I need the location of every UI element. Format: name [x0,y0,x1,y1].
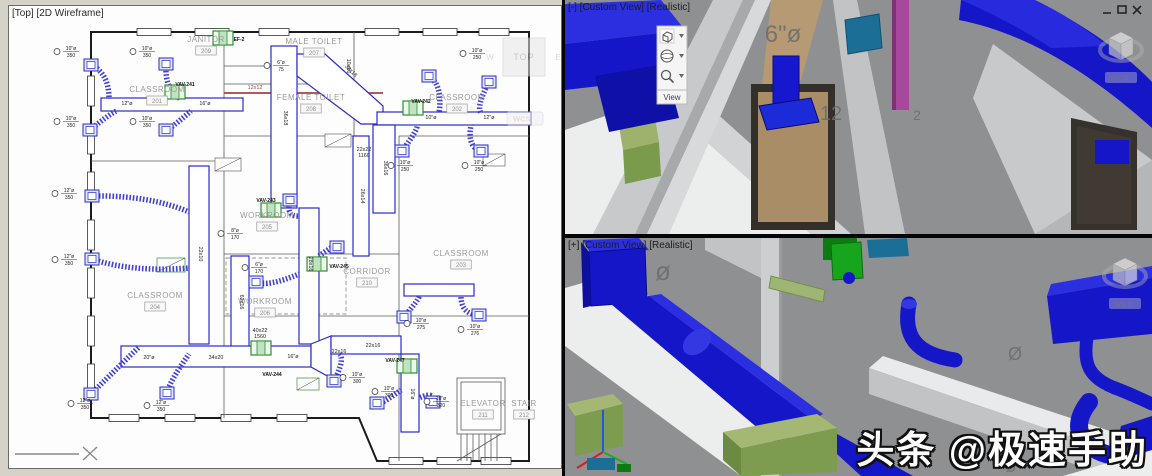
room-name: FEMALE TOILET [277,93,345,102]
room-number: 202 [452,107,463,113]
svg-text:10"ø: 10"ø [474,160,484,166]
duct-size-label: 12"ø [483,115,495,121]
room-name: STAIR [511,399,536,408]
room-name: ELEVATOR [460,399,505,408]
svg-text:6"ø: 6"ø [255,262,263,268]
air-diffuser [159,58,173,70]
room-name: WORKROOM [238,297,292,306]
svg-text:350: 350 [65,195,74,201]
annotation-text: 6"ø [765,21,802,48]
duct-size-label: 28x16 [307,257,313,272]
svg-text:350: 350 [157,407,166,413]
3d-scene-top: 6"ø122 [565,0,1152,234]
svg-text:10"ø: 10"ø [472,48,482,54]
room-number: 205 [262,225,273,231]
svg-text:10"ø: 10"ø [66,116,76,122]
viewport-3d-top-label[interactable]: [-] [Custom View] [Realistic] [568,2,690,13]
duct-size-label: 34x20 [209,355,224,361]
svg-text:350: 350 [67,123,76,129]
diffuser-callout: 12"ø350 [144,400,169,413]
diffuser-callout: 10"ø276 [458,324,483,337]
room-number: 211 [478,413,488,419]
room-number: 201 [152,99,163,105]
duct-size-label: 12"ø [121,101,133,107]
svg-text:8"ø: 8"ø [231,228,239,234]
duct-size-label: 1160 [358,153,370,159]
duct-size-label: 10"ø [425,115,437,121]
svg-text:10"ø: 10"ø [142,46,152,52]
svg-text:75: 75 [278,67,284,73]
air-diffuser [422,70,436,82]
svg-text:EF-2: EF-2 [234,37,245,43]
svg-text:10"ø: 10"ø [66,46,76,52]
annotation-text: ø [655,256,671,286]
svg-text:12"ø: 12"ø [64,188,74,194]
air-diffuser [283,194,297,206]
view-toolbar-label: View [663,93,680,102]
svg-text:170: 170 [255,269,264,275]
room-name: CLASSROOM [429,93,485,102]
room-number: 208 [306,107,317,113]
orbit-icon [661,50,673,62]
duct-size-label: 10x10 [345,59,351,74]
svg-text:6"ø: 6"ø [277,60,285,66]
svg-text:320: 320 [437,403,446,409]
duct-size-label: 22x10 [197,247,203,262]
room-name: JANITOR [187,35,225,44]
diffuser-callout: 12"ø350 [52,254,77,267]
air-diffuser [83,124,97,136]
diffuser-callout: 12"ø350 [68,398,93,411]
watermark: 头条 @极速手助 [856,419,1148,474]
svg-text:10"ø: 10"ø [142,116,152,122]
viewport-3d-bottom-label[interactable]: [+] [Custom View] [Realistic] [568,240,693,251]
air-diffuser [327,375,341,387]
svg-text:250: 250 [473,55,482,61]
diffuser-callout: 10"ø350 [130,116,155,129]
viewcube-west: W [486,53,494,62]
room-number: 204 [150,305,161,311]
duct-size-label: 16"ø [287,354,299,360]
air-diffuser [474,145,488,157]
air-diffuser [370,397,384,409]
duct-size-label: 1560 [254,334,266,340]
viewport-plan-2d[interactable]: [Top] [2D Wireframe] [8,5,562,469]
diffuser-callout: 10"ø350 [54,46,79,59]
duct-size-label: 16"ø [409,388,415,400]
duct-size-label: 12x12 [248,85,263,91]
air-diffuser [85,190,99,202]
room-number: 203 [456,263,467,269]
room-number: 206 [260,311,271,317]
diffuser-callout: 10"ø350 [130,46,155,59]
duct-size-label: 20"ø [143,355,155,361]
room-name: CLASSROOM [127,291,183,300]
annotation-text: 12 [820,103,842,125]
viewcube-east: E [555,53,560,62]
duct-size-label: 16"ø [199,101,211,107]
duct-size-label: 36x16 [382,161,388,176]
diffuser-callout: 8"ø170 [218,228,243,241]
svg-text:276: 276 [471,331,480,337]
view-mini-toolbar[interactable]: View [657,26,687,104]
svg-text:250: 250 [475,167,484,173]
diffuser-callout: 10"ø250 [462,160,487,173]
diffuser-callout: 12"ø350 [52,188,77,201]
svg-text:10"ø: 10"ø [416,318,426,324]
room-number: 209 [201,49,212,55]
svg-text:VAV-244: VAV-244 [262,372,281,378]
floor-plan-canvas[interactable]: VAV-241VAV-242VAV-243VAV-245VAV-244VAV-2… [9,6,561,468]
duct-size-label: 36x18 [282,111,288,126]
flex-duct [92,196,189,212]
svg-text:10"ø: 10"ø [384,386,394,392]
cad-application-window: [Top] [2D Wireframe] [0,0,1152,476]
svg-text:10"ø: 10"ø [470,324,480,330]
svg-text:170: 170 [231,235,240,241]
room-number: 212 [519,413,530,419]
room-name: CLASSROOM [129,85,185,94]
air-diffuser [159,124,173,136]
viewport-plan-label[interactable]: [Top] [2D Wireframe] [12,8,104,19]
svg-text:350: 350 [143,123,152,129]
svg-text:VAV-243: VAV-243 [256,198,275,204]
svg-text:300: 300 [385,393,394,399]
svg-text:275: 275 [417,325,426,331]
viewcube-top-face: TOP [513,52,534,62]
wcs-menu-3d-top: WCS [1110,74,1129,83]
svg-text:12"ø: 12"ø [156,400,166,406]
duct-size-label: 22x16 [366,343,381,349]
duct-size-label: 22x16 [332,349,347,355]
duct-size-label: 62x16 [238,295,244,310]
room-number: 207 [309,51,320,57]
svg-text:350: 350 [65,261,74,267]
svg-text:VAV-247: VAV-247 [385,358,404,364]
svg-text:10"ø: 10"ø [352,372,362,378]
air-diffuser [160,387,174,399]
svg-text:10"ø: 10"ø [400,160,410,166]
air-diffuser [482,76,496,88]
viewport-3d-top[interactable]: 6"ø122 [565,0,1152,234]
wcs-menu-3d-bottom: WCS [1114,300,1133,309]
svg-text:350: 350 [81,405,90,411]
diffuser-callout: 10"ø300 [340,372,365,385]
room-number: 210 [362,281,373,287]
room-name: CLASSROOM [433,249,489,258]
air-diffuser [395,145,409,157]
air-diffuser [85,253,99,265]
svg-text:350: 350 [143,53,152,59]
diffuser-callout: 10"ø350 [54,116,79,129]
annotation-text: Ø [1008,344,1022,364]
diffuser-callout: 10"ø250 [460,48,485,61]
annotation-text: 2 [913,107,921,123]
svg-text:350: 350 [67,53,76,59]
room-name: MALE TOILET [285,37,342,46]
app-frame-bottom [0,469,562,476]
wcs-menu-plan: WCS [513,115,531,124]
air-diffuser [249,276,263,288]
air-diffuser [84,59,98,71]
room-name: WORKROOM [240,211,294,220]
svg-text:300: 300 [353,379,362,385]
air-diffuser [472,309,486,321]
duct-size-label: 26x14 [359,189,365,204]
app-frame-left [0,0,8,476]
svg-text:VAV-242: VAV-242 [411,99,430,105]
svg-text:10"ø: 10"ø [436,396,446,402]
svg-text:12"ø: 12"ø [64,254,74,260]
air-diffuser [330,241,344,253]
svg-text:12"ø: 12"ø [80,398,90,404]
vav-unit: VAV-247 [385,358,417,373]
ucs-icon-plan [15,447,97,460]
svg-text:250: 250 [401,167,410,173]
room-name: CORRIDOR [343,267,391,276]
